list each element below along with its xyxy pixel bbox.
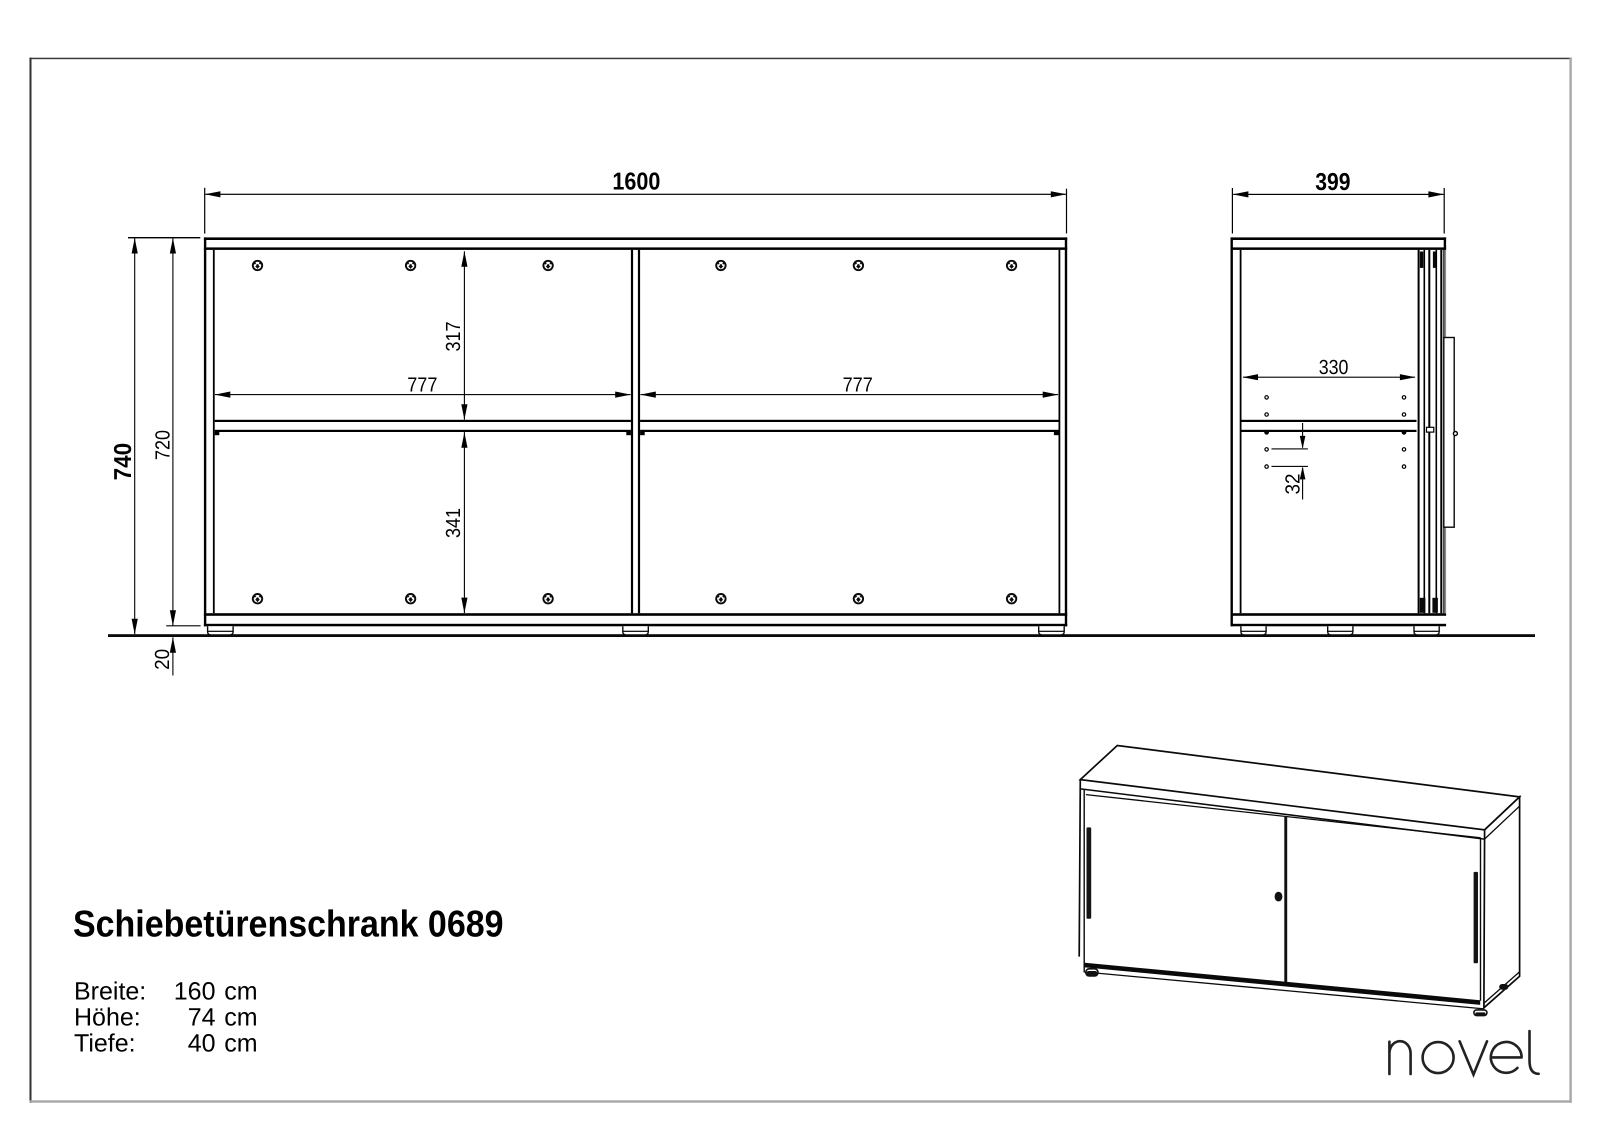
svg-text:399: 399 [1315, 169, 1350, 196]
svg-text:Höhe:: Höhe: [74, 1003, 141, 1031]
svg-text:720: 720 [152, 430, 174, 460]
svg-text:777: 777 [843, 375, 873, 397]
svg-text:740: 740 [110, 443, 137, 481]
svg-text:777: 777 [407, 375, 437, 397]
svg-text:160: 160 [174, 977, 216, 1005]
svg-text:40: 40 [188, 1029, 216, 1057]
svg-text:330: 330 [1319, 357, 1349, 379]
svg-text:32: 32 [1282, 474, 1304, 495]
svg-text:cm: cm [224, 1003, 257, 1031]
svg-text:317: 317 [443, 322, 465, 352]
svg-text:cm: cm [224, 1029, 257, 1057]
svg-text:341: 341 [443, 508, 465, 538]
svg-text:Breite:: Breite: [74, 977, 146, 1005]
svg-text:cm: cm [224, 977, 257, 1005]
svg-text:1600: 1600 [612, 169, 660, 196]
svg-text:20: 20 [152, 649, 174, 670]
svg-text:Schiebetürenschrank 0689: Schiebetürenschrank 0689 [73, 903, 504, 945]
svg-text:Tiefe:: Tiefe: [74, 1029, 136, 1057]
svg-text:74: 74 [188, 1003, 216, 1031]
